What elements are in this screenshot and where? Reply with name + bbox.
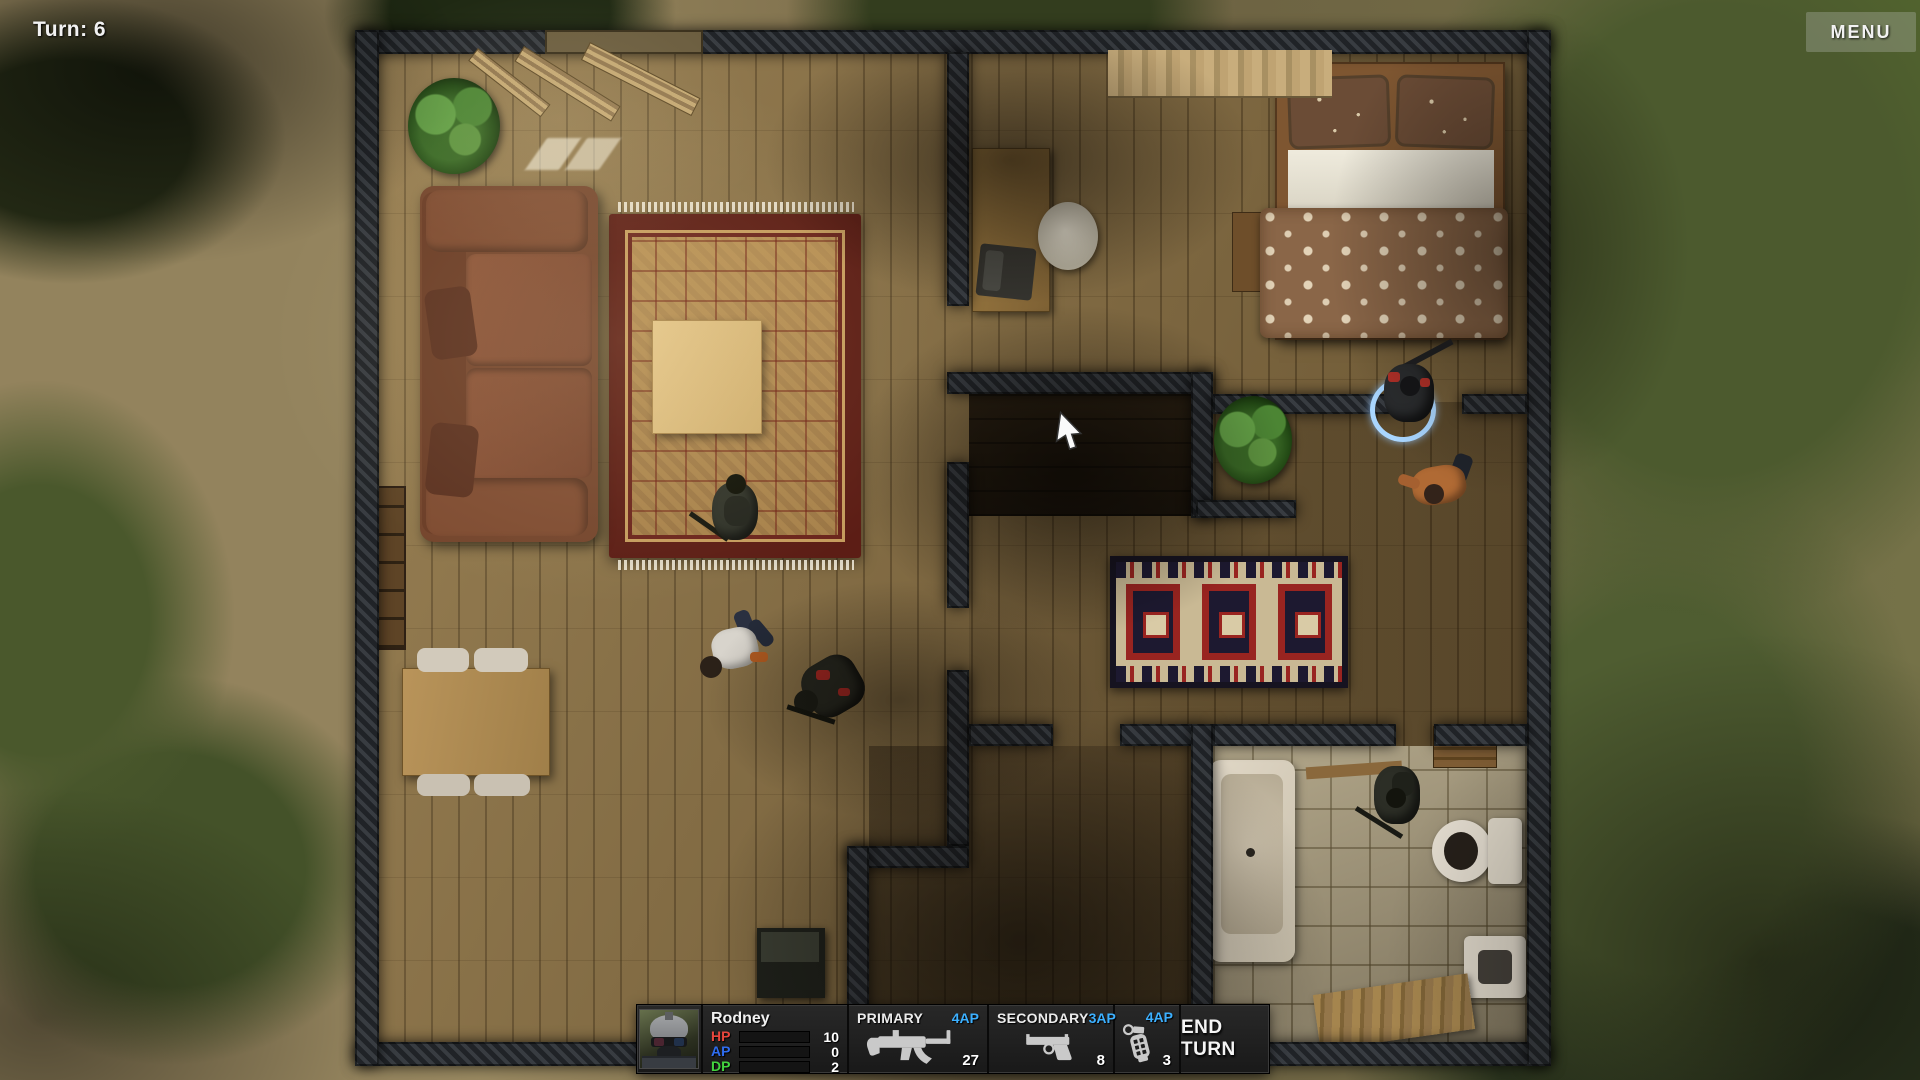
soldier-bathroom[interactable] — [1352, 756, 1432, 850]
turn-counter: Turn: 6 — [33, 18, 106, 42]
couch-armrest — [426, 190, 588, 252]
telephone — [975, 243, 1036, 301]
couch — [420, 186, 598, 542]
bed-blanket — [1260, 208, 1508, 338]
secondary-weapon-slot[interactable]: SECONDARY 3AP 8 — [989, 1005, 1115, 1073]
curtains — [1108, 50, 1332, 98]
chair — [474, 774, 530, 796]
unit-portrait[interactable] — [637, 1005, 703, 1073]
couch-cushion — [466, 254, 592, 366]
rug-medallion — [1126, 584, 1180, 660]
hp-label: HP — [711, 1030, 738, 1043]
ap-row: AP 0 — [711, 1045, 839, 1058]
primary-ap-cost: 4AP — [952, 1010, 979, 1026]
helmet-mount — [665, 1012, 673, 1020]
couch-cushion — [466, 368, 592, 478]
civilian-fallen-2[interactable] — [1396, 450, 1480, 522]
secondary-ammo: 8 — [1097, 1052, 1105, 1069]
ap-value: 0 — [815, 1044, 839, 1060]
secondary-label: SECONDARY — [997, 1010, 1089, 1026]
hall-plant — [1214, 396, 1292, 484]
wall-hall-bottom — [1120, 724, 1196, 746]
toilet-bowl — [1444, 832, 1478, 870]
soldier-selected[interactable] — [1362, 346, 1454, 442]
wall-outer-left — [355, 30, 379, 1066]
wall-outer-top — [355, 30, 1551, 54]
game-viewport: Turn: 6 MENU Rodney HP 10 AP — [0, 0, 1920, 1080]
toilet-tank — [1488, 818, 1522, 884]
wall-bedroom-bottom — [1462, 394, 1527, 414]
civilian-fallen[interactable] — [694, 610, 778, 686]
grenade-icon — [1123, 1021, 1159, 1072]
hp-value: 10 — [815, 1029, 839, 1045]
sink-basin — [1478, 950, 1512, 984]
chair — [474, 648, 528, 672]
dp-value: 2 — [815, 1059, 839, 1075]
toilet — [1432, 818, 1526, 886]
grenade-count: 3 — [1163, 1052, 1171, 1069]
bed-sheet — [1288, 150, 1494, 212]
storage-chest — [757, 928, 825, 998]
unit-name: Rodney — [711, 1010, 839, 1028]
rug-band — [1116, 666, 1342, 682]
primary-label: PRIMARY — [857, 1010, 923, 1026]
hp-row: HP 10 — [711, 1030, 839, 1043]
primary-weapon-slot[interactable]: PRIMARY 4AP 27 — [849, 1005, 989, 1073]
wall-alcove-bottom — [1196, 500, 1296, 518]
rug-fringe — [618, 560, 854, 570]
hp-bar — [739, 1031, 810, 1043]
soldier-portrait-icon — [639, 1009, 699, 1069]
coffee-table — [652, 320, 762, 434]
menu-button[interactable]: MENU — [1806, 12, 1916, 52]
wall-living-bedroom — [947, 52, 969, 306]
couch-pillow — [424, 422, 479, 499]
primary-ammo: 27 — [962, 1052, 979, 1069]
rug-medallion — [1202, 584, 1256, 660]
rug-fringe — [618, 202, 854, 212]
dp-bar — [739, 1061, 810, 1073]
chair — [417, 774, 470, 796]
unit-info: Rodney HP 10 AP 0 DP 2 — [703, 1005, 849, 1073]
pistol-icon — [1007, 1029, 1093, 1068]
wall-bathroom-top — [1213, 724, 1396, 746]
vest — [642, 1056, 696, 1069]
rug-band — [1116, 562, 1342, 578]
dp-label: DP — [711, 1060, 738, 1073]
ap-label: AP — [711, 1045, 738, 1058]
unit-hud-panel: Rodney HP 10 AP 0 DP 2 PRIMARY 4AP — [637, 1005, 1269, 1073]
smg-icon — [859, 1027, 971, 1072]
secondary-ap-cost: 3AP — [1089, 1010, 1116, 1026]
sink — [1464, 936, 1526, 998]
chair — [417, 648, 469, 672]
wall-living-hall-lower — [947, 670, 969, 846]
dp-row: DP 2 — [711, 1060, 839, 1073]
hall-rug — [1110, 556, 1348, 688]
soldier-living-room[interactable] — [686, 468, 766, 554]
rug-medallion — [1278, 584, 1332, 660]
office-chair — [1038, 202, 1098, 270]
bathtub — [1209, 760, 1295, 962]
houseplant — [408, 78, 500, 174]
end-turn-button[interactable]: END TURN — [1181, 1005, 1269, 1073]
wall-closet-right — [1191, 372, 1213, 518]
dining-table — [402, 668, 550, 776]
couch-pillow — [423, 285, 478, 361]
nightstand — [1232, 212, 1262, 292]
closet-floor[interactable] — [969, 394, 1191, 516]
wall-closet-top — [947, 372, 1213, 394]
wall-bathroom-top — [1434, 724, 1527, 746]
tub-drain — [1246, 848, 1255, 857]
soldier-fallen[interactable] — [786, 648, 878, 728]
wall-living-hall-upper — [947, 462, 969, 608]
ap-bar — [739, 1046, 810, 1058]
window — [545, 30, 703, 54]
bed — [1275, 62, 1505, 340]
grenade-slot[interactable]: 4AP 3 — [1115, 1005, 1181, 1073]
chest-lid — [761, 932, 819, 962]
wall-hall-bottom — [969, 724, 1053, 746]
wall-outer-right — [1527, 30, 1551, 1066]
bed-pillow — [1395, 74, 1495, 149]
wall-bathroom-left — [1191, 724, 1213, 1042]
end-turn-label: END TURN — [1181, 1017, 1269, 1061]
